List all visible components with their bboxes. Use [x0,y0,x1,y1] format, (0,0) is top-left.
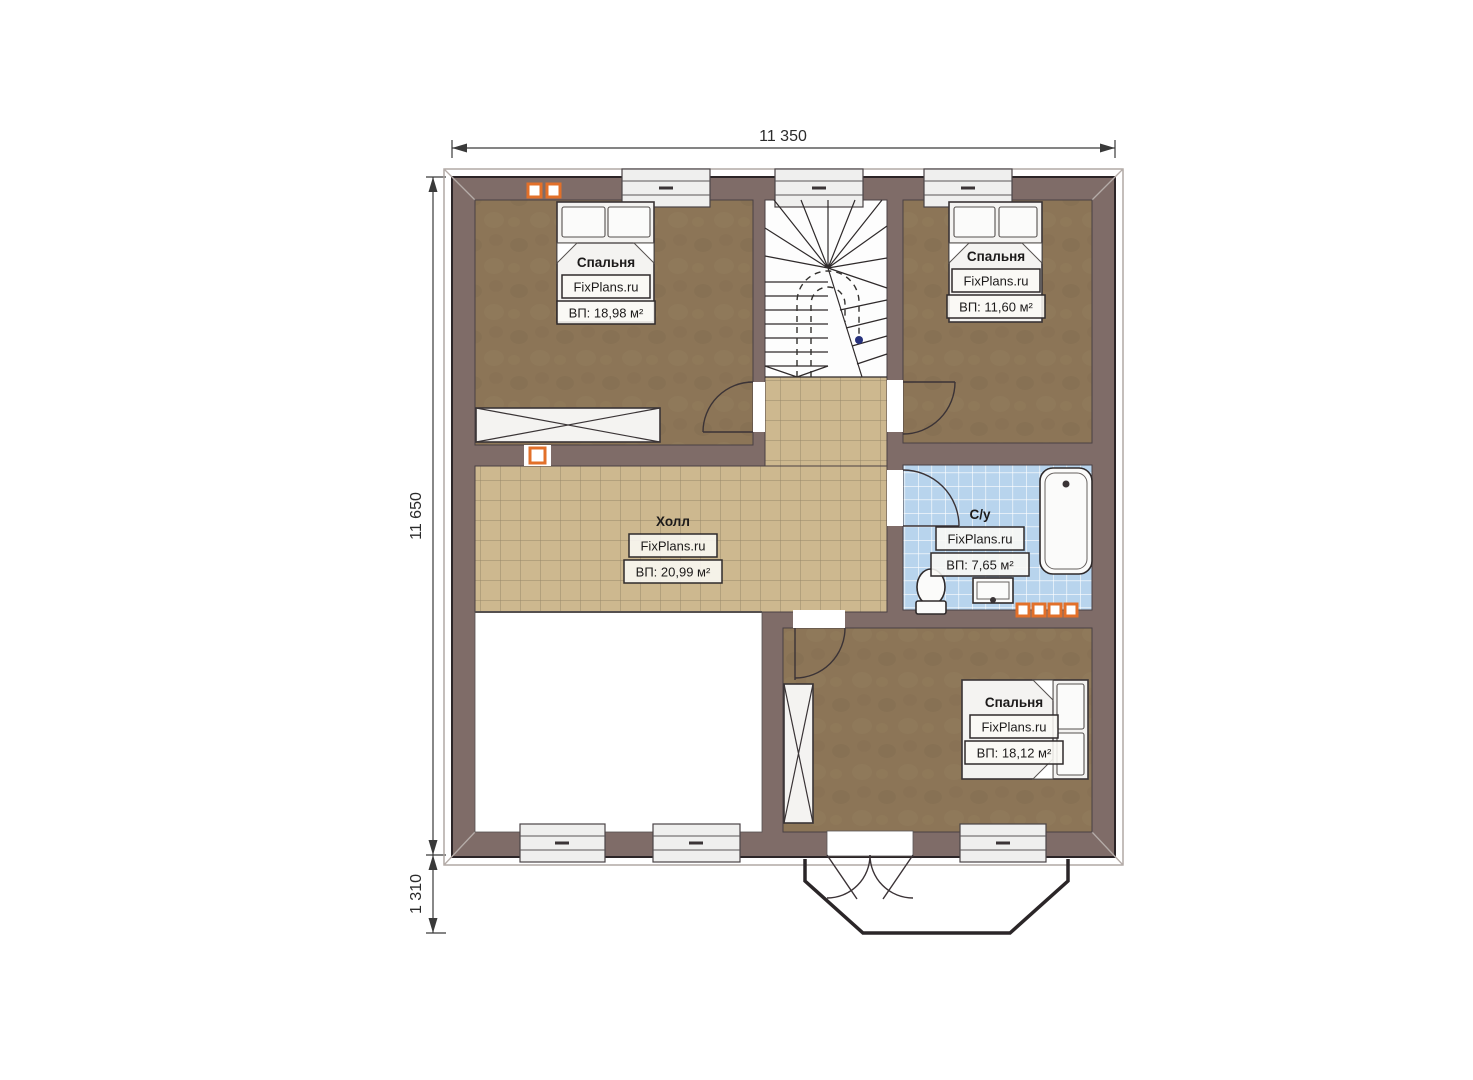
floor-plan-page: 11 350 11 650 1 310 [0,0,1473,1080]
room-name: С/у [969,507,991,522]
dimension-top: 11 350 [452,128,1115,158]
floor-plan-drawing: 11 350 11 650 1 310 [0,0,1473,1080]
balcony-door-opening [827,831,913,856]
room-area: ВП: 18,12 м² [977,746,1052,761]
dimension-left-label: 11 650 [408,492,425,540]
vent-icon [530,448,545,463]
room-name: Спальня [985,695,1043,710]
room-area: ВП: 20,99 м² [636,565,711,580]
dimension-balcony-label: 1 310 [408,874,425,914]
room-brand: FixPlans.ru [947,532,1012,547]
window-top-2 [775,169,863,207]
dimension-balcony: 1 310 [408,855,446,933]
bathtub [1040,468,1092,574]
room-area: ВП: 18,98 м² [569,306,644,321]
room-staircase [765,200,887,377]
room-area: ВП: 7,65 м² [946,558,1014,573]
room-void [475,612,762,832]
balcony-door [827,855,913,899]
vent-icon [528,184,541,197]
room-brand: FixPlans.ru [981,720,1046,735]
room-name: Спальня [577,255,635,270]
room-brand: FixPlans.ru [963,274,1028,289]
dimension-top-label: 11 350 [759,128,807,145]
room-name: Спальня [967,249,1025,264]
wardrobe-bottom [784,684,813,823]
vent-icon [1065,604,1077,616]
vent-icon [1017,604,1029,616]
room-brand: FixPlans.ru [640,539,705,554]
room-hall-landing [765,377,887,466]
window-bottom-1 [520,824,605,862]
wardrobe-top-left [476,408,660,442]
vent-icon [1049,604,1061,616]
room-area: ВП: 11,60 м² [959,300,1033,315]
room-brand: FixPlans.ru [573,280,638,295]
sink [973,578,1013,603]
dimension-left: 11 650 [408,177,446,855]
stair-walkline-end-marker [855,336,863,344]
window-bottom-3 [960,824,1046,862]
window-bottom-2 [653,824,740,862]
room-name: Холл [656,514,690,529]
vent-icon [547,184,560,197]
vent-icon [1033,604,1045,616]
